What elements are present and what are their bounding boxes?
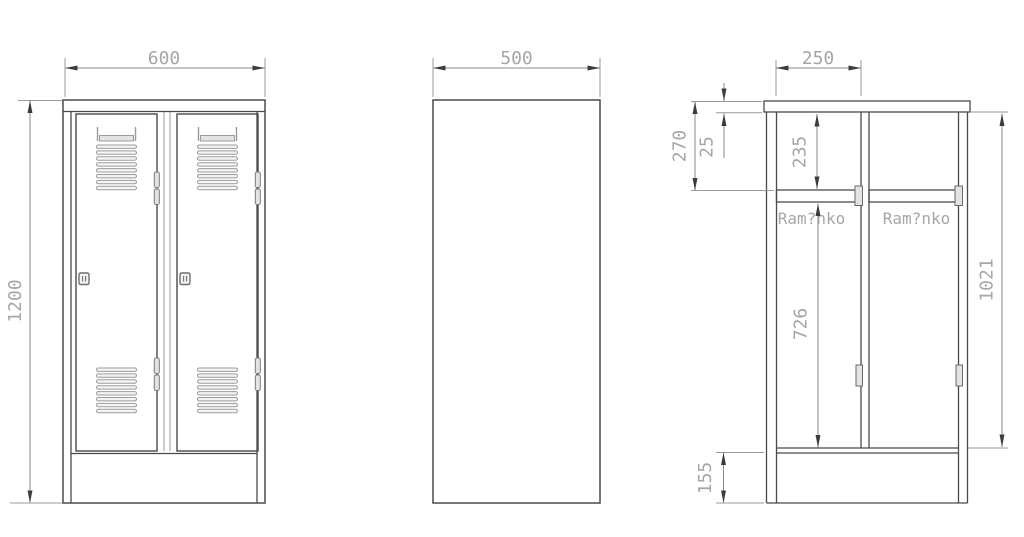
dim-front-height: 1200 (5, 101, 62, 504)
top-zone-value: 270 (670, 130, 691, 163)
technical-drawing: 600 1200 500 (0, 0, 1024, 537)
top-panel-value: 25 (697, 136, 718, 158)
cabinet-front (63, 100, 265, 503)
top-panel (764, 101, 970, 112)
interior-height-value: 1021 (977, 258, 998, 301)
hook-icon (956, 365, 963, 386)
above-shelf-value: 235 (790, 136, 811, 169)
side-view: 500 (433, 48, 600, 503)
hook-icon (856, 365, 863, 386)
dim-top-zone: 270 (670, 102, 775, 191)
section-view: 250 270 25 235 Ram?nko Ram?nko 726 (670, 48, 1009, 503)
locker-door-right (177, 114, 260, 451)
hanger-rail-label-right: Ram?nko (883, 209, 950, 228)
drawing-page: 600 1200 500 (0, 0, 1024, 537)
plinth-value: 155 (695, 462, 716, 495)
front-width-value: 600 (148, 48, 181, 69)
dim-side-depth: 500 (433, 48, 600, 97)
shelf-right (869, 186, 963, 206)
dim-interior-height: 1021 (968, 112, 1008, 448)
side-depth-value: 500 (500, 48, 533, 69)
dim-front-width: 600 (65, 48, 265, 97)
front-view: 600 1200 (5, 48, 265, 503)
dim-hanging-zone: 726 (791, 204, 819, 448)
front-height-value: 1200 (5, 279, 26, 322)
locker-door-left (76, 114, 159, 451)
dim-plinth: 155 (695, 453, 764, 504)
cabinet-side (433, 100, 600, 503)
dim-compartment-width: 250 (776, 48, 861, 96)
hanger-rail-label-left: Ram?nko (778, 209, 845, 228)
dim-top-panel: 25 (697, 83, 763, 158)
hanging-zone-value: 726 (791, 308, 812, 341)
dim-above-shelf: 235 (790, 114, 818, 189)
shelf-left (777, 186, 863, 206)
compartment-width-value: 250 (802, 48, 835, 69)
